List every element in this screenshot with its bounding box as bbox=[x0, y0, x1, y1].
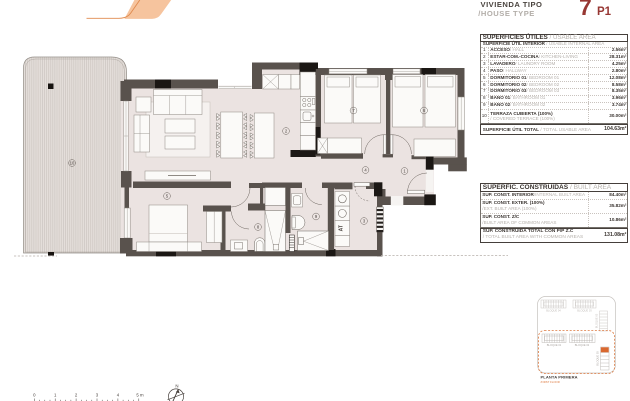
svg-text:10: 10 bbox=[70, 161, 75, 166]
svg-text:BLOQUE 04: BLOQUE 04 bbox=[546, 309, 561, 313]
svg-text:/FIRST FLOOR: /FIRST FLOOR bbox=[541, 380, 560, 384]
svg-text:BLOQUE 01: BLOQUE 01 bbox=[547, 343, 562, 347]
svg-text:BLOQUE 05: BLOQUE 05 bbox=[595, 313, 599, 328]
svg-text:BLOQUE 03: BLOQUE 03 bbox=[577, 309, 592, 313]
svg-text:1: 1 bbox=[54, 393, 57, 398]
svg-text:N: N bbox=[175, 384, 178, 389]
svg-text:3: 3 bbox=[96, 393, 99, 398]
svg-text:AT: AT bbox=[339, 225, 345, 231]
svg-text:4: 4 bbox=[117, 393, 120, 398]
svg-text:BLOQUE 03: BLOQUE 03 bbox=[596, 351, 600, 366]
svg-text:0: 0 bbox=[33, 393, 36, 398]
svg-text:5 m: 5 m bbox=[136, 393, 144, 398]
svg-text:2: 2 bbox=[75, 393, 78, 398]
svg-text:BLOQUE 02: BLOQUE 02 bbox=[575, 343, 590, 347]
